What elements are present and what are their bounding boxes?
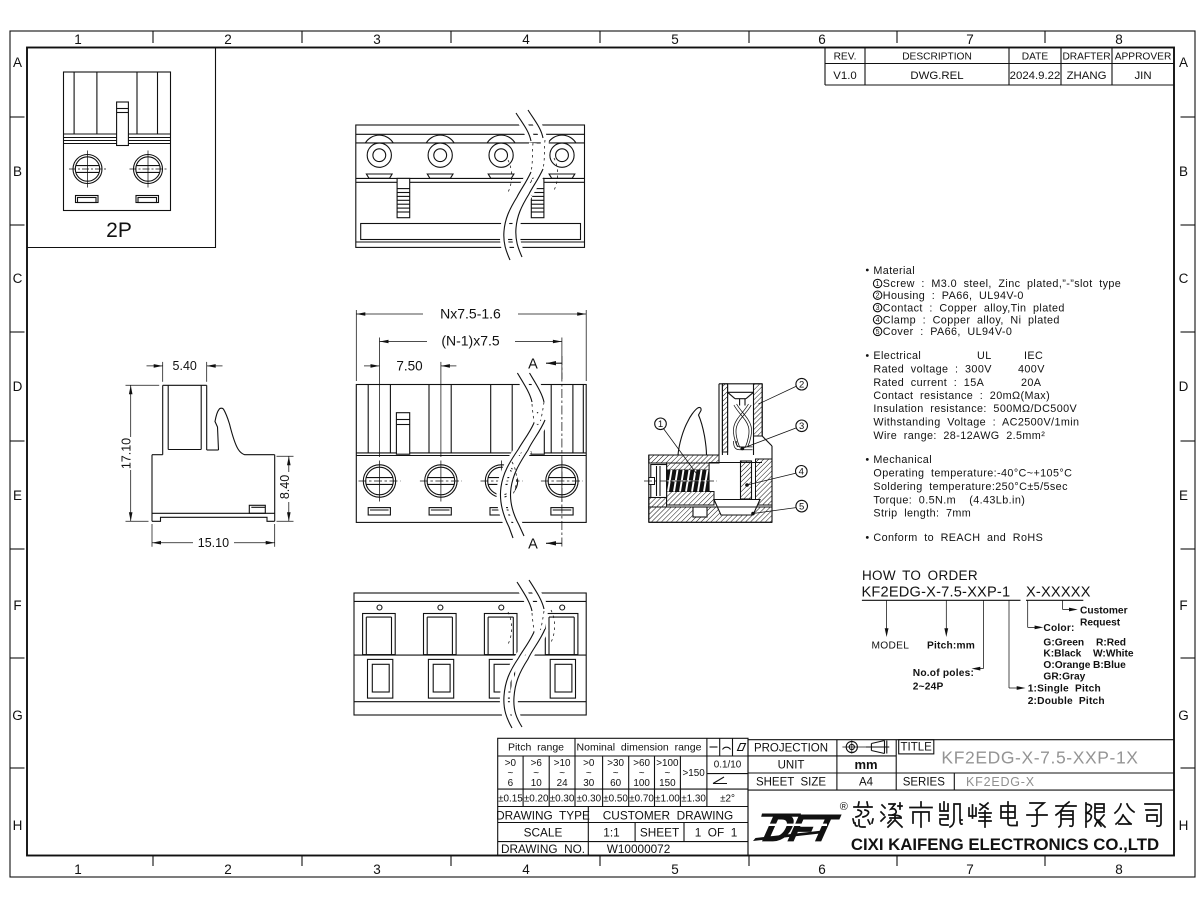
svg-text:Rated voltage : 300V: Rated voltage : 300V — [873, 364, 992, 376]
svg-text:6: 6 — [818, 32, 826, 47]
svg-text:UL: UL — [977, 350, 992, 362]
svg-text:Customer: Customer — [1080, 605, 1128, 616]
svg-text:TITLE: TITLE — [901, 742, 933, 754]
svg-text:10: 10 — [531, 778, 542, 789]
svg-text:30: 30 — [583, 778, 594, 789]
svg-text:4: 4 — [522, 32, 530, 47]
svg-text:F: F — [13, 598, 21, 613]
svg-text:1: 1 — [876, 281, 880, 288]
svg-text:H: H — [13, 818, 23, 833]
svg-text:D: D — [1179, 379, 1189, 394]
svg-text:3: 3 — [876, 305, 880, 312]
svg-text:W:White: W:White — [1093, 649, 1134, 660]
svg-text:E: E — [1179, 488, 1188, 503]
svg-text:HOW TO ORDER: HOW TO ORDER — [862, 568, 978, 583]
svg-text:Insulation resistance: 500MΩ/D: Insulation resistance: 500MΩ/DC500V — [873, 403, 1077, 415]
svg-text:REV.: REV. — [834, 52, 857, 63]
svg-text:5: 5 — [671, 862, 679, 877]
svg-text:B: B — [13, 164, 22, 179]
svg-text:1: 1 — [74, 32, 82, 47]
svg-text:±1.00: ±1.00 — [655, 794, 680, 805]
svg-text:17.10: 17.10 — [120, 438, 134, 469]
svg-text:±0.15: ±0.15 — [498, 794, 523, 805]
svg-text:B: B — [1179, 164, 1188, 179]
svg-text:±0.30: ±0.30 — [576, 794, 601, 805]
svg-text:DWG.REL: DWG.REL — [910, 70, 963, 82]
svg-text:C: C — [13, 271, 23, 286]
svg-text:IEC: IEC — [1024, 350, 1043, 362]
svg-text:CUSTOMER DRAWING: CUSTOMER DRAWING — [603, 809, 733, 823]
svg-text:2: 2 — [224, 32, 232, 47]
svg-text:G: G — [1178, 708, 1189, 723]
svg-text:G: G — [12, 708, 23, 723]
svg-text:±0.50: ±0.50 — [603, 794, 628, 805]
svg-text:APPROVER: APPROVER — [1115, 52, 1172, 63]
svg-text:Contact resistance : 20mΩ(Max): Contact resistance : 20mΩ(Max) — [873, 390, 1050, 402]
svg-text:H: H — [1179, 818, 1189, 833]
svg-text:Material: Material — [873, 265, 915, 277]
svg-text:Nominal dimension range: Nominal dimension range — [577, 742, 702, 754]
svg-text:±1.30: ±1.30 — [681, 794, 706, 805]
svg-text:A: A — [528, 537, 538, 553]
svg-text:(N-1)x7.5: (N-1)x7.5 — [441, 333, 500, 349]
svg-text:0.1/10: 0.1/10 — [714, 760, 742, 771]
svg-text:4: 4 — [522, 862, 530, 877]
svg-text:UNIT: UNIT — [778, 760, 805, 772]
svg-text:O:Orange: O:Orange — [1043, 660, 1090, 671]
svg-text:SERIES: SERIES — [903, 777, 946, 789]
svg-text:8: 8 — [1115, 32, 1123, 47]
svg-text:A: A — [13, 55, 22, 70]
svg-text:3: 3 — [799, 421, 804, 432]
svg-text:Color:: Color: — [1043, 623, 1074, 634]
svg-text:Strip length: 7mm: Strip length: 7mm — [873, 508, 971, 520]
svg-text:SCALE: SCALE — [524, 826, 563, 840]
svg-text:DRAWING NO.: DRAWING NO. — [501, 842, 585, 856]
svg-text:3: 3 — [373, 32, 381, 47]
svg-text:2: 2 — [799, 380, 804, 391]
svg-text:Wire range: 28-12AWG 2.5mm²: Wire range: 28-12AWG 2.5mm² — [873, 430, 1045, 442]
svg-text:X-XXXXX: X-XXXXX — [1026, 585, 1091, 601]
svg-text:Rated current : 15A: Rated current : 15A — [873, 377, 984, 389]
svg-text:7.50: 7.50 — [396, 358, 422, 373]
svg-text:GR:Gray: GR:Gray — [1043, 672, 1085, 683]
svg-text:SHEET SIZE: SHEET SIZE — [756, 777, 826, 789]
svg-text:PROJECTION: PROJECTION — [754, 742, 828, 754]
svg-text:150: 150 — [659, 778, 676, 789]
svg-text:2:Double Pitch: 2:Double Pitch — [1028, 696, 1105, 707]
svg-text:1:Single Pitch: 1:Single Pitch — [1028, 684, 1101, 695]
svg-text:KF2EDG-X: KF2EDG-X — [966, 775, 1035, 789]
svg-text:Withstanding Voltage : AC2500V: Withstanding Voltage : AC2500V/1min — [873, 416, 1079, 428]
svg-text:DESCRIPTION: DESCRIPTION — [902, 52, 972, 63]
svg-text:4: 4 — [799, 467, 804, 478]
svg-text:Mechanical: Mechanical — [873, 454, 932, 466]
svg-text:2~24P: 2~24P — [913, 681, 944, 692]
svg-text:±2°: ±2° — [720, 794, 735, 805]
svg-text:24: 24 — [557, 778, 568, 789]
svg-text:2: 2 — [876, 293, 880, 300]
svg-text:KF2EDG-X-7.5-XXP-1: KF2EDG-X-7.5-XXP-1 — [862, 585, 1011, 601]
svg-text:±0.70: ±0.70 — [629, 794, 654, 805]
svg-text:1: 1 — [74, 862, 82, 877]
svg-text:F: F — [1179, 598, 1187, 613]
svg-text:Soldering temperature:250°C±5/: Soldering temperature:250°C±5/5sec — [873, 481, 1068, 493]
svg-text:E: E — [13, 488, 22, 503]
svg-text:CIXI KAIFENG ELECTRONICS CO.,L: CIXI KAIFENG ELECTRONICS CO.,LTD — [851, 835, 1159, 854]
svg-text:DATE: DATE — [1022, 52, 1049, 63]
svg-text:Nx7.5-1.6: Nx7.5-1.6 — [440, 305, 501, 321]
svg-text:400V: 400V — [1018, 364, 1045, 376]
svg-text:Operating temperature:-40°C~+1: Operating temperature:-40°C~+105°C — [873, 468, 1072, 480]
svg-text:4: 4 — [876, 317, 880, 324]
svg-text:2: 2 — [224, 862, 232, 877]
svg-text:6: 6 — [508, 778, 514, 789]
svg-text:mm: mm — [854, 757, 877, 772]
svg-text:G:Green: G:Green — [1043, 637, 1084, 648]
svg-text:Pitch range: Pitch range — [508, 742, 564, 754]
svg-text:20A: 20A — [1021, 377, 1042, 389]
svg-text:>150: >150 — [682, 768, 705, 779]
svg-text:Torque: 0.5N.m (4.43Lb.in): Torque: 0.5N.m (4.43Lb.in) — [873, 494, 1025, 506]
svg-text:1 OF 1: 1 OF 1 — [695, 826, 738, 840]
svg-text:6: 6 — [818, 862, 826, 877]
svg-text:Request: Request — [1080, 617, 1121, 628]
svg-text:Electrical: Electrical — [873, 350, 921, 362]
svg-text:5: 5 — [876, 329, 880, 336]
svg-text:Pitch:mm: Pitch:mm — [927, 640, 975, 651]
svg-text:A4: A4 — [859, 777, 874, 789]
svg-text:D: D — [13, 379, 23, 394]
svg-text:7: 7 — [966, 32, 974, 47]
svg-text:Screw : M3.0 steel, Zinc plate: Screw : M3.0 steel, Zinc plated,”-”slot … — [883, 278, 1121, 290]
svg-text:8.40: 8.40 — [278, 475, 292, 499]
svg-text:W10000072: W10000072 — [607, 842, 671, 856]
svg-text:KF2EDG-X-7.5-XXP-1X: KF2EDG-X-7.5-XXP-1X — [941, 748, 1138, 768]
svg-text:A: A — [1179, 55, 1188, 70]
svg-text:K:Black: K:Black — [1043, 649, 1081, 660]
svg-text:7: 7 — [966, 862, 974, 877]
svg-text:R:Red: R:Red — [1096, 637, 1126, 648]
svg-text:2024.9.22: 2024.9.22 — [1010, 70, 1061, 82]
svg-text:C: C — [1179, 271, 1189, 286]
svg-text:3: 3 — [373, 862, 381, 877]
svg-text:±0.30: ±0.30 — [550, 794, 575, 805]
svg-text:Contact : Copper alloy,Tin pla: Contact : Copper alloy,Tin plated — [883, 302, 1065, 314]
svg-text:1:1: 1:1 — [603, 826, 619, 840]
svg-text:Cover : PA66, UL94V-0: Cover : PA66, UL94V-0 — [883, 326, 1012, 338]
svg-text:JIN: JIN — [1134, 70, 1151, 82]
svg-text:5: 5 — [671, 32, 679, 47]
svg-text:60: 60 — [610, 778, 621, 789]
svg-text:MODEL: MODEL — [872, 640, 910, 651]
svg-text:Housing : PA66, UL94V-0: Housing : PA66, UL94V-0 — [883, 290, 1024, 302]
svg-text:1: 1 — [658, 419, 663, 430]
svg-text:B:Blue: B:Blue — [1093, 660, 1126, 671]
svg-text:5.40: 5.40 — [173, 359, 197, 373]
svg-text:Conform to REACH and RoHS: Conform to REACH and RoHS — [873, 532, 1043, 544]
svg-text:DRAWING TYPE: DRAWING TYPE — [496, 809, 590, 823]
svg-text:5: 5 — [799, 502, 804, 513]
svg-text:No.of poles:: No.of poles: — [913, 668, 974, 679]
svg-text:±0.20: ±0.20 — [524, 794, 549, 805]
svg-text:2P: 2P — [106, 219, 132, 242]
svg-text:8: 8 — [1115, 862, 1123, 877]
svg-text:100: 100 — [633, 778, 650, 789]
svg-text:Clamp : Copper alloy, Ni plate: Clamp : Copper alloy, Ni plated — [883, 314, 1060, 326]
svg-text:A: A — [528, 357, 538, 373]
svg-text:15.10: 15.10 — [198, 536, 229, 550]
svg-text:DRAFTER: DRAFTER — [1062, 52, 1110, 63]
svg-text:V1.0: V1.0 — [833, 70, 856, 82]
svg-text:SHEET: SHEET — [640, 826, 679, 840]
svg-text:ZHANG: ZHANG — [1067, 70, 1107, 82]
